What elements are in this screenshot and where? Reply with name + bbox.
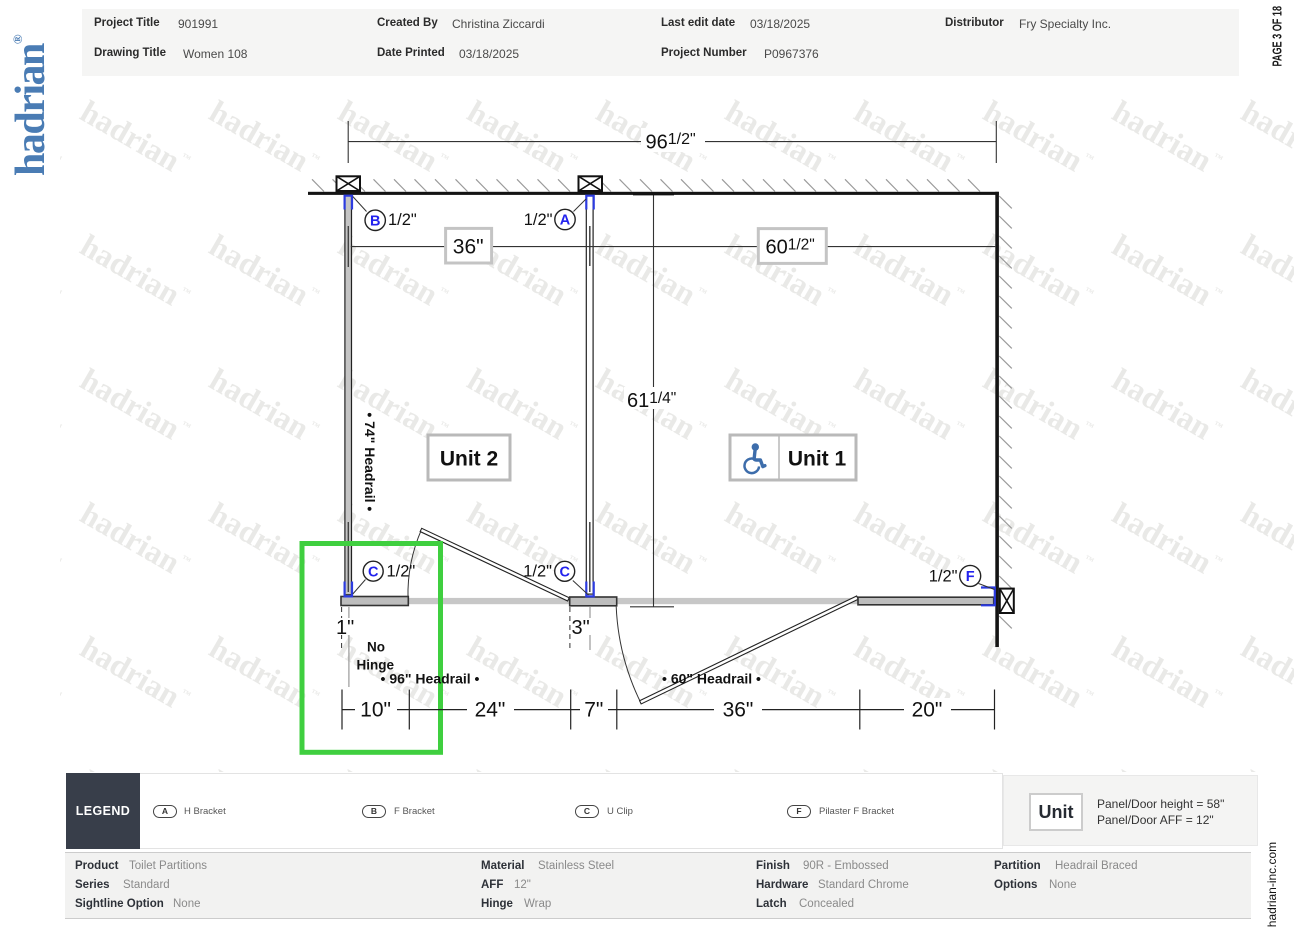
svg-text:7": 7" xyxy=(584,699,603,722)
svg-text:36": 36" xyxy=(453,236,484,259)
svg-text:1/2": 1/2" xyxy=(523,563,552,581)
svg-text:24": 24" xyxy=(475,699,506,722)
svg-text:1/2": 1/2" xyxy=(929,568,958,586)
svg-text:1/2": 1/2" xyxy=(388,211,417,229)
svg-text:B: B xyxy=(370,213,380,229)
svg-text:C: C xyxy=(368,564,379,580)
svg-text:10": 10" xyxy=(360,699,391,722)
svg-text:36": 36" xyxy=(723,699,754,722)
svg-text:A: A xyxy=(560,213,571,229)
svg-text:F: F xyxy=(966,569,975,585)
svg-text:• 60" Headrail •: • 60" Headrail • xyxy=(662,671,761,687)
svg-text:Unit 1: Unit 1 xyxy=(788,448,847,471)
svg-text:No: No xyxy=(367,640,385,655)
svg-text:20": 20" xyxy=(912,699,943,722)
svg-text:1/2": 1/2" xyxy=(387,563,416,581)
svg-text:• 96" Headrail •: • 96" Headrail • xyxy=(381,671,480,687)
svg-text:• 74" Headrail •: • 74" Headrail • xyxy=(362,412,378,511)
svg-text:3": 3" xyxy=(572,617,590,639)
svg-text:1/2": 1/2" xyxy=(524,211,553,229)
svg-text:C: C xyxy=(559,564,570,580)
svg-text:Unit 2: Unit 2 xyxy=(440,448,498,471)
svg-text:1": 1" xyxy=(336,617,354,639)
